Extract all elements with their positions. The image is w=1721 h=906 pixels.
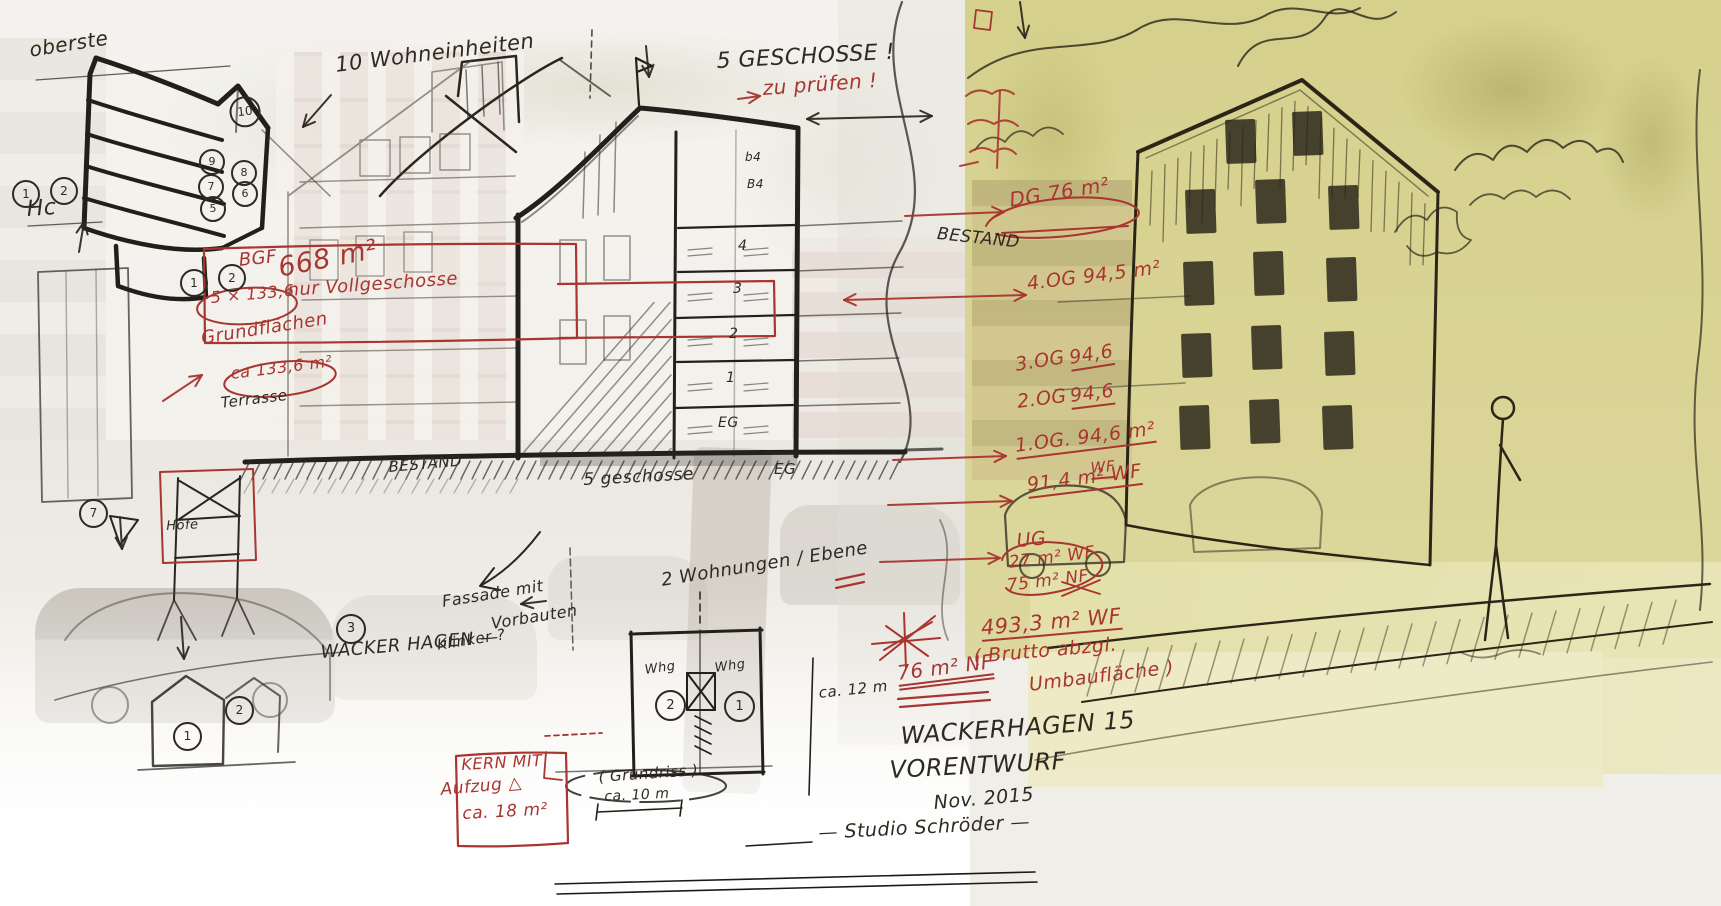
title-project: WACKERHAGEN 15 [900,708,1136,749]
circle-1-haus: 1 [173,722,202,751]
label-grundflaeche: Grundflächen [200,310,329,349]
circle-9: 9 [199,149,225,175]
kern-zeile-1: KERN MIT [461,753,543,774]
label-hoefe: Höfe [166,518,199,533]
dim-ca-12m: ca. 12 m [818,679,889,702]
row-3og: 3.OG [1014,348,1066,375]
circle-2-links: 2 [50,177,78,205]
title-date: Nov. 2015 [933,785,1035,814]
label-oberste: oberste [28,28,110,61]
row-dg: DG 76 m² [1008,174,1111,210]
calc-bgf: 5 × 133,6 [210,283,295,307]
row-eg-wert: 91,4 m² WF [1026,462,1143,499]
dim-ca-10m: ca. 10 m [604,787,670,805]
floor-eg: EG [718,416,739,431]
row-3og-wert: 94,6 [1068,342,1115,372]
value-grundflaeche: ca 133,6 m² [230,354,333,383]
circle-5: 5 [200,196,226,222]
floor-4: 4 [738,239,747,254]
title-credit: — Studio Schröder — [818,813,1030,844]
row-4og: 4.OG 94,5 m² [1026,259,1162,295]
circle-1-plan: 1 [724,691,755,722]
label-bestand-baum: BESTAND [936,226,1020,252]
label-eg-sockel: EG [774,462,796,478]
row-ug-nf: 75 m² NF [1006,568,1090,596]
circle-3: 3 [336,614,366,644]
label-b4-oben: b4 [745,151,761,164]
label-b4-unten: B4 [747,178,764,191]
note-fassade-1: Fassade mit [441,578,545,611]
note-2-wohnungen: 2 Wohnungen / Ebene [660,539,869,590]
floor-2: 2 [729,327,738,342]
sketch-collage: obersteHc10 Wohneinheiten5 GESCHOSSE !BE… [0,0,1721,906]
floor-1: 1 [726,371,735,386]
label-terrasse: Terrasse [220,388,288,412]
note-10-wohneinheiten: 10 Wohneinheiten [334,30,535,76]
circle-1-bgf: 1 [180,269,208,297]
circle-7-unten: 7 [79,499,108,528]
title-phase: VORENTWURF [889,749,1067,783]
note-brutto-2: Umbaufläche ) [1028,658,1175,696]
kern-zeile-3: ca. 18 m² [462,802,548,824]
total-nf: 76 m² NF [896,651,995,691]
row-2og: 2.OG [1016,387,1068,413]
circle-2-haus: 2 [225,696,254,725]
circle-2-plan: 2 [655,690,686,721]
label-grundriss: ( Grundriss ) [598,763,699,786]
circle-10: 10 [228,95,262,129]
label-bestand-links: BESTAND [388,454,463,476]
label-bgf: BGF [238,248,278,271]
note-zu-pruefen: zu prüfen ! [762,70,878,99]
label-whg-1: Whg [714,658,746,676]
floor-3: 3 [733,282,742,297]
kern-zeile-2: Aufzug △ [440,775,523,800]
circle-6: 6 [232,181,258,207]
label-5-geschosse-sockel: 5 geschosse [583,466,694,490]
annotations-layer: obersteHc10 Wohneinheiten5 GESCHOSSE !BE… [0,0,1721,906]
label-whg-2: Whg [644,660,676,678]
circle-1-links: 1 [12,180,40,208]
row-2og-wert: 94,6 [1069,382,1116,410]
row-1og: 1.OG. 94,6 m² [1014,420,1157,460]
